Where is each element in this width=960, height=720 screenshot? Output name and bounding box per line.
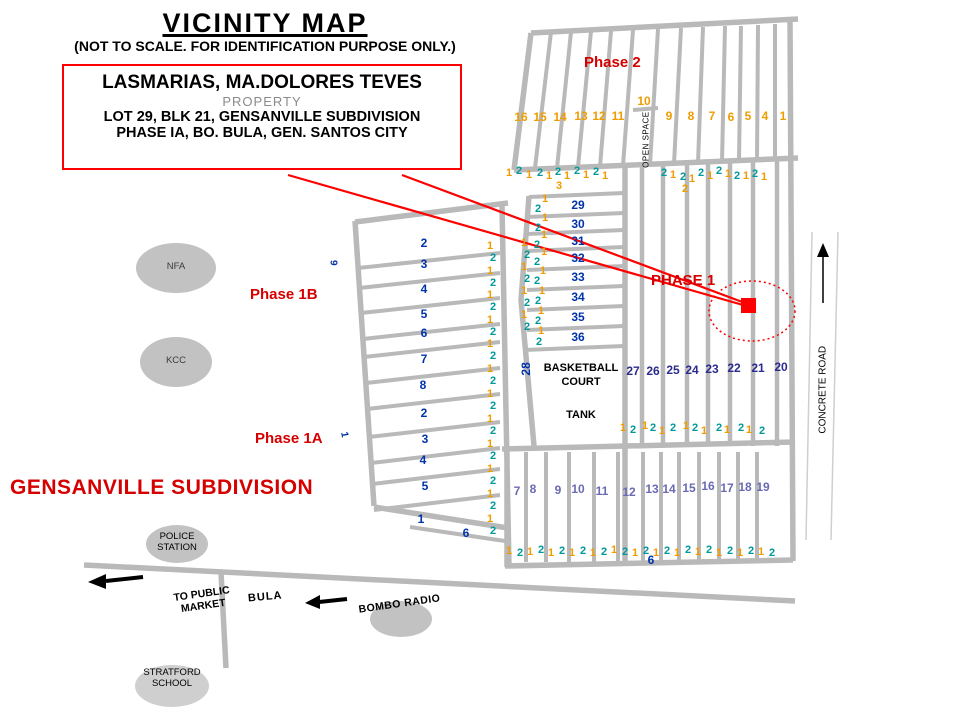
lot-marker: 2 bbox=[574, 165, 580, 177]
lot-marker: 1 bbox=[746, 424, 752, 436]
tank-label: TANK bbox=[536, 409, 626, 422]
left-arrow-market bbox=[88, 574, 143, 589]
lot-marker: 2 bbox=[682, 183, 688, 195]
lot-marker: 5 bbox=[745, 109, 752, 123]
lot-marker: 2 bbox=[524, 273, 530, 285]
lot-marker: 1 bbox=[541, 229, 547, 241]
lot-marker: 31 bbox=[571, 234, 584, 248]
callout-kind: PROPERTY bbox=[64, 94, 460, 109]
lot-marker: 13 bbox=[645, 482, 658, 496]
nfa-label: NFA bbox=[160, 262, 192, 273]
lot-marker: 1 bbox=[487, 488, 493, 500]
lot-marker: 2 bbox=[769, 547, 775, 559]
lot-marker: 27 bbox=[626, 364, 639, 378]
lot-marker: 7 bbox=[421, 352, 428, 366]
lot-marker: 2 bbox=[738, 422, 744, 434]
lot-marker: 2 bbox=[650, 422, 656, 434]
map-title: VICINITY MAP bbox=[120, 8, 410, 39]
lot-marker: 1 bbox=[569, 547, 575, 559]
lot-marker: 3 bbox=[556, 180, 562, 192]
lot-marker: 1 bbox=[487, 363, 493, 375]
phase1-streets bbox=[642, 161, 777, 446]
lot-marker: 2 bbox=[698, 167, 704, 179]
lot-marker: 1 bbox=[632, 547, 638, 559]
lot-marker: 1 bbox=[659, 425, 665, 437]
lot-marker: 1 bbox=[674, 547, 680, 559]
lot-marker: 2 bbox=[661, 167, 667, 179]
lot-marker: 2 bbox=[692, 422, 698, 434]
lot-marker: 1 bbox=[602, 170, 608, 182]
lot-marker: 30 bbox=[571, 217, 584, 231]
lot-marker: 2 bbox=[490, 252, 496, 264]
lot-marker: 1 bbox=[725, 168, 731, 180]
lot-marker: 25 bbox=[666, 363, 679, 377]
lot-marker: 1 bbox=[701, 425, 707, 437]
lot-marker: 2 bbox=[524, 297, 530, 309]
lot-marker: 1 bbox=[583, 169, 589, 181]
lot-marker: 1 bbox=[541, 246, 547, 258]
lot-marker: 16 bbox=[514, 110, 527, 124]
left-block-streets bbox=[358, 253, 505, 541]
lot-marker: 4 bbox=[421, 282, 428, 296]
lot-marker: 2 bbox=[490, 326, 496, 338]
lot-marker: 1 bbox=[506, 545, 512, 557]
lot-marker: 2 bbox=[490, 500, 496, 512]
lot-marker: 1 bbox=[542, 193, 548, 205]
lot-marker: 2 bbox=[490, 400, 496, 412]
lot-marker: 36 bbox=[571, 330, 584, 344]
lot-marker: 2 bbox=[593, 166, 599, 178]
lot-marker: 2 bbox=[685, 544, 691, 556]
lot-marker: 2 bbox=[538, 544, 544, 556]
lot-marker: 13 bbox=[574, 109, 587, 123]
lot-marker: 2 bbox=[716, 165, 722, 177]
lot-marker: 22 bbox=[727, 361, 740, 375]
lot-marker: 8 bbox=[688, 109, 695, 123]
phase-1a-label: Phase 1A bbox=[255, 430, 323, 447]
rotated-9-label: 9 bbox=[327, 260, 339, 266]
lot-marker: 2 bbox=[490, 475, 496, 487]
lot-marker: 2 bbox=[680, 171, 686, 183]
lot-marker: 9 bbox=[555, 483, 562, 497]
lot-marker: 26 bbox=[646, 364, 659, 378]
lot-marker: 2 bbox=[490, 450, 496, 462]
lot-marker: 4 bbox=[420, 453, 427, 467]
lot-marker: 15 bbox=[533, 110, 546, 124]
lot-marker: 11 bbox=[596, 484, 609, 498]
lot-marker: 1 bbox=[521, 237, 527, 249]
lot-marker: 2 bbox=[421, 406, 428, 420]
lot-marker: 2 bbox=[580, 545, 586, 557]
left-arrow-bombo bbox=[305, 595, 347, 609]
lot-marker: 1 bbox=[521, 309, 527, 321]
lot-marker: 1 bbox=[521, 261, 527, 273]
lot-marker: 2 bbox=[490, 425, 496, 437]
property-marker bbox=[741, 298, 756, 313]
lot-marker: 1 bbox=[487, 438, 493, 450]
lot-marker: 19 bbox=[756, 480, 769, 494]
lot-marker: 5 bbox=[422, 479, 429, 493]
phase2-streets bbox=[535, 24, 775, 168]
lot-marker: 3 bbox=[421, 257, 428, 271]
lot-28-label: 28 bbox=[520, 358, 534, 380]
lot-marker: 6 bbox=[728, 110, 735, 124]
lot-marker: 4 bbox=[762, 109, 769, 123]
lot-marker: 1 bbox=[611, 544, 617, 556]
lot-marker: 6 bbox=[421, 326, 428, 340]
lot-marker: 1 bbox=[487, 388, 493, 400]
lot-marker: 2 bbox=[670, 422, 676, 434]
lot-marker: 2 bbox=[490, 350, 496, 362]
lot-marker: 2 bbox=[716, 422, 722, 434]
lot-marker: 2 bbox=[630, 424, 636, 436]
callout-location: PHASE IA, BO. BULA, GEN. SANTOS CITY bbox=[64, 125, 460, 141]
lot-marker: 2 bbox=[759, 425, 765, 437]
lot-marker: 1 bbox=[487, 413, 493, 425]
lot-marker: 6 bbox=[463, 526, 470, 540]
lot-marker: 1 bbox=[724, 424, 730, 436]
lot-marker: 2 bbox=[664, 545, 670, 557]
lot-marker: 7 bbox=[709, 109, 716, 123]
lot-marker: 5 bbox=[421, 307, 428, 321]
phase-2-label: Phase 2 bbox=[584, 54, 641, 71]
lot-marker: 1 bbox=[716, 547, 722, 559]
lot-marker: 2 bbox=[490, 277, 496, 289]
lot-marker: 23 bbox=[705, 362, 718, 376]
lot-marker: 1 bbox=[683, 420, 689, 432]
lot-marker: 34 bbox=[571, 290, 584, 304]
lot-marker: 1 bbox=[761, 171, 767, 183]
lot-marker: 2 bbox=[537, 167, 543, 179]
lot-marker: 2 bbox=[524, 321, 530, 333]
lot-marker: 1 bbox=[418, 512, 425, 526]
lot-marker: 2 bbox=[727, 545, 733, 557]
lot-marker: 1 bbox=[695, 546, 701, 558]
lot-marker: 24 bbox=[685, 363, 698, 377]
lot-marker: 1 bbox=[546, 170, 552, 182]
lot-marker: 1 bbox=[487, 338, 493, 350]
lot-marker: 2 bbox=[752, 168, 758, 180]
lot-marker: 10 bbox=[637, 94, 650, 108]
lot-marker: 1 bbox=[506, 167, 512, 179]
map-subtitle: (NOT TO SCALE. FOR IDENTIFICATION PURPOS… bbox=[36, 38, 494, 54]
lot-marker: 1 bbox=[590, 547, 596, 559]
callout-lot: LOT 29, BLK 21, GENSANVILLE SUBDIVISION bbox=[64, 109, 460, 125]
stratford-school-label: STRATFORD SCHOOL bbox=[132, 668, 212, 690]
lot-marker: 1 bbox=[564, 170, 570, 182]
phase-1-label: PHASE 1 bbox=[651, 272, 715, 289]
open-space-label: OPEN SPACE bbox=[641, 100, 650, 180]
lot-marker: 17 bbox=[720, 481, 733, 495]
lot-marker: 3 bbox=[422, 432, 429, 446]
subdivision-name: GENSANVILLE SUBDIVISION bbox=[10, 476, 313, 500]
lot-marker: 2 bbox=[748, 545, 754, 557]
lot-marker: 10 bbox=[571, 482, 584, 496]
lot-marker: 2 bbox=[490, 375, 496, 387]
lot-marker: 1 bbox=[487, 289, 493, 301]
lot-marker: 1 bbox=[487, 463, 493, 475]
lot-marker: 18 bbox=[738, 480, 751, 494]
lot-marker: 1 bbox=[542, 212, 548, 224]
lot-marker: 1 bbox=[548, 547, 554, 559]
lot-marker: 12 bbox=[592, 109, 605, 123]
lot-marker: 14 bbox=[553, 110, 566, 124]
lot-marker: 7 bbox=[514, 484, 521, 498]
lot-marker: 35 bbox=[571, 310, 584, 324]
lot-marker: 15 bbox=[682, 481, 695, 495]
lot-marker: 2 bbox=[601, 546, 607, 558]
lot-marker: 8 bbox=[420, 378, 427, 392]
lot-marker: 1 bbox=[707, 170, 713, 182]
lot-marker: 11 bbox=[612, 109, 625, 123]
lot-marker: 1 bbox=[487, 240, 493, 252]
lot-marker: 1 bbox=[689, 173, 695, 185]
lot-marker: 2 bbox=[734, 170, 740, 182]
lot-marker: 14 bbox=[662, 482, 675, 496]
lot-marker: 2 bbox=[555, 166, 561, 178]
up-arrow bbox=[817, 243, 829, 303]
lot-marker: 2 bbox=[559, 545, 565, 557]
lot-marker: 8 bbox=[530, 482, 537, 496]
lot-marker: 16 bbox=[701, 479, 714, 493]
lot-marker: 1 bbox=[670, 169, 676, 181]
lot-marker: 2 bbox=[622, 546, 628, 558]
basketball-court-label: BASKETBALL COURT bbox=[536, 361, 626, 390]
lot-marker: 1 bbox=[758, 546, 764, 558]
lot-marker: 1 bbox=[526, 169, 532, 181]
lot-marker: 9 bbox=[666, 109, 673, 123]
property-callout-box: LASMARIAS, MA.DOLORES TEVES PROPERTY LOT… bbox=[62, 64, 462, 170]
lot-marker: 2 bbox=[534, 239, 540, 251]
lot-marker: 1 bbox=[780, 109, 787, 123]
phase-1b-label: Phase 1B bbox=[250, 286, 318, 303]
lot-marker: 2 bbox=[706, 544, 712, 556]
lot-marker: 2 bbox=[490, 525, 496, 537]
lot-marker: 29 bbox=[571, 198, 584, 212]
lot-marker: 1 bbox=[487, 513, 493, 525]
callout-owner: LASMARIAS, MA.DOLORES TEVES bbox=[64, 72, 460, 94]
concrete-road-label: CONCRETE ROAD bbox=[817, 334, 829, 446]
lot-marker: 21 bbox=[751, 361, 764, 375]
lot-marker: 1 bbox=[487, 314, 493, 326]
lot-marker: 6 bbox=[648, 553, 655, 567]
lot-marker: 2 bbox=[516, 165, 522, 177]
lot-marker: 32 bbox=[571, 251, 584, 265]
lot-marker: 2 bbox=[535, 203, 541, 215]
lot-marker: 2 bbox=[524, 249, 530, 261]
lot-marker: 33 bbox=[571, 270, 584, 284]
lot-marker: 1 bbox=[540, 265, 546, 277]
lot-marker: 1 bbox=[527, 546, 533, 558]
lot-marker: 2 bbox=[421, 236, 428, 250]
lot-marker: 12 bbox=[622, 485, 635, 499]
lot-marker: 1 bbox=[487, 265, 493, 277]
lot-marker: 1 bbox=[620, 422, 626, 434]
lot-marker: 20 bbox=[774, 360, 787, 374]
lot-marker: 1 bbox=[743, 170, 749, 182]
lot-marker: 2 bbox=[536, 336, 542, 348]
lot-marker: 1 bbox=[521, 285, 527, 297]
lot-marker: 1 bbox=[737, 547, 743, 559]
lot-marker: 2 bbox=[517, 547, 523, 559]
lot-marker: 1 bbox=[642, 420, 648, 432]
kcc-label: KCC bbox=[160, 356, 192, 367]
police-station-label: POLICE STATION bbox=[147, 532, 207, 554]
lot-marker: 2 bbox=[490, 301, 496, 313]
vicinity-map: VICINITY MAP (NOT TO SCALE. FOR IDENTIFI… bbox=[0, 0, 960, 720]
